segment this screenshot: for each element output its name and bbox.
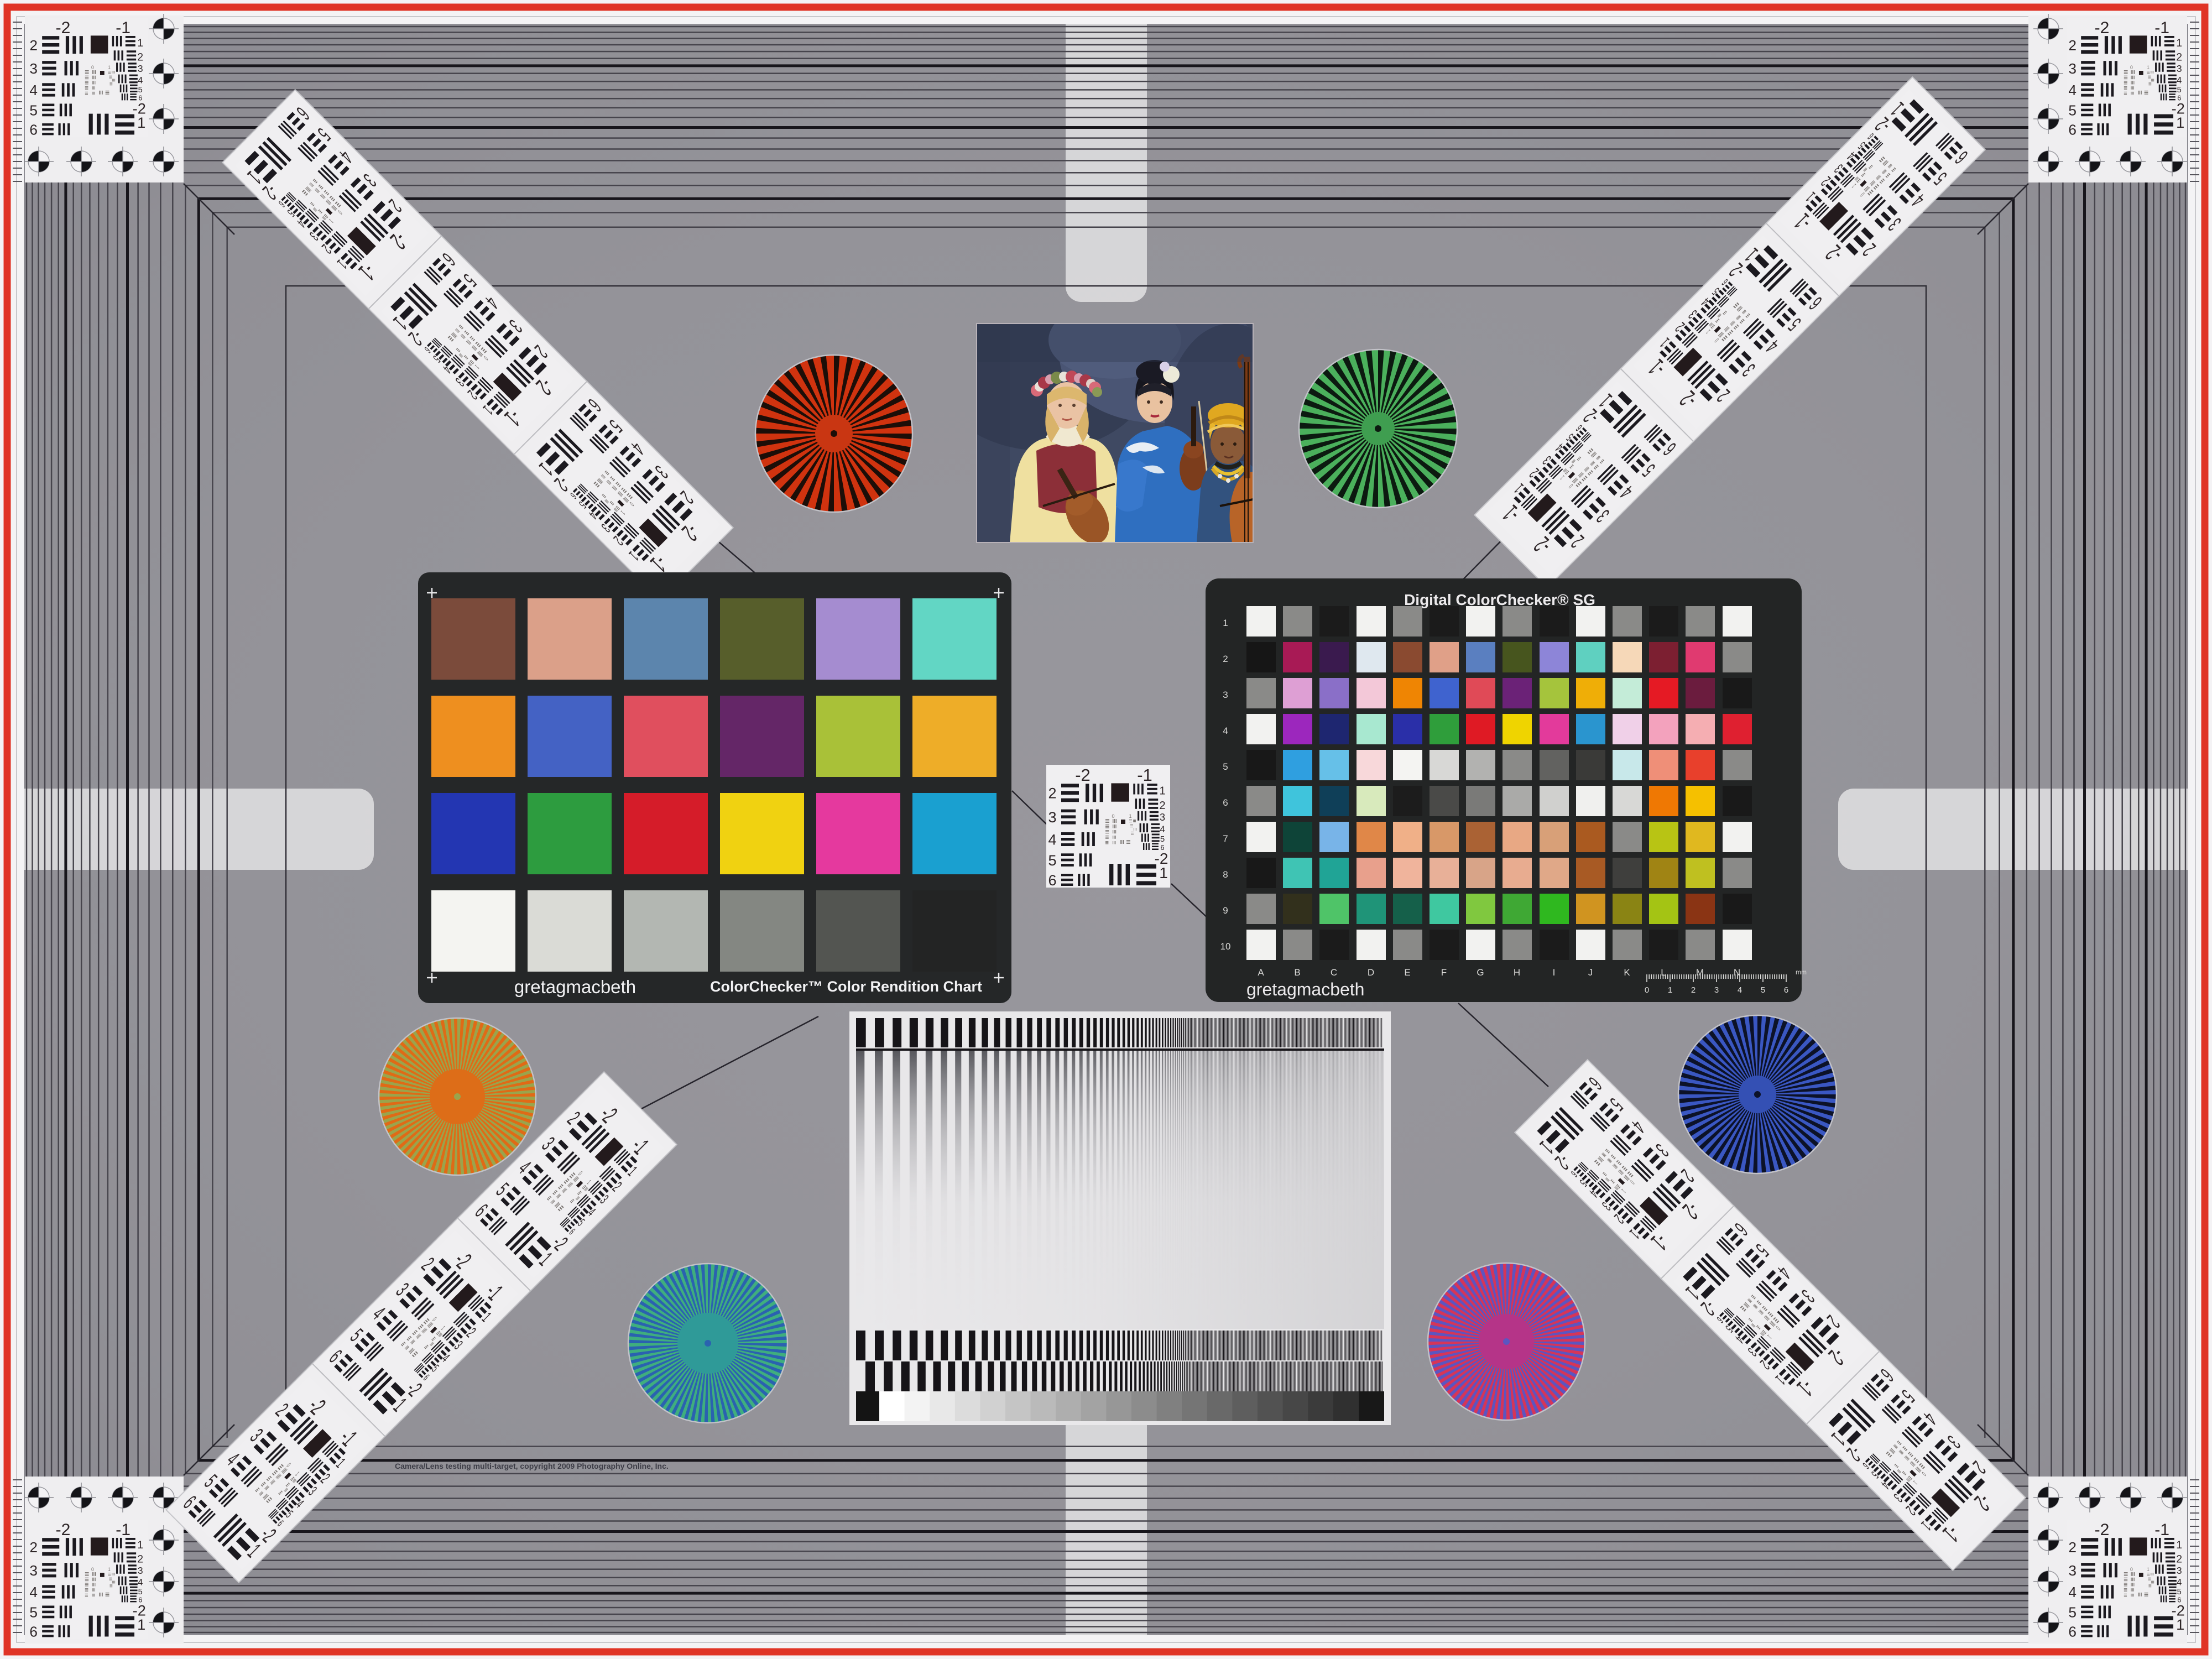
svg-text:B: B: [1294, 967, 1300, 978]
svg-text:5: 5: [1761, 985, 1765, 995]
svg-text:D: D: [1368, 967, 1374, 978]
svg-text:0: 0: [1645, 985, 1649, 995]
svg-text:2: 2: [1223, 654, 1228, 664]
svg-text:10: 10: [1220, 941, 1231, 952]
svg-text:I: I: [1553, 967, 1556, 978]
svg-text:4: 4: [1738, 985, 1742, 995]
svg-text:C: C: [1331, 967, 1337, 978]
svg-text:K: K: [1624, 967, 1630, 978]
svg-text:9: 9: [1223, 905, 1228, 916]
svg-text:5: 5: [1223, 761, 1228, 772]
svg-text:A: A: [1258, 967, 1264, 978]
svg-text:3: 3: [1223, 690, 1228, 700]
svg-text:J: J: [1588, 967, 1593, 978]
svg-text:1: 1: [1668, 985, 1672, 995]
svg-text:8: 8: [1223, 869, 1228, 880]
svg-text:4: 4: [1223, 726, 1228, 736]
svg-text:3: 3: [1714, 985, 1719, 995]
svg-text:H: H: [1514, 967, 1520, 978]
svg-text:2: 2: [1691, 985, 1695, 995]
svg-text:E: E: [1404, 967, 1410, 978]
svg-text:7: 7: [1223, 833, 1228, 844]
svg-text:gretagmacbeth: gretagmacbeth: [1246, 979, 1364, 999]
svg-text:6: 6: [1784, 985, 1788, 995]
svg-text:G: G: [1477, 967, 1484, 978]
svg-text:6: 6: [1223, 797, 1228, 808]
svg-text:1: 1: [1223, 618, 1228, 628]
svg-text:Camera/Lens testing multi-targ: Camera/Lens testing multi-target, copyri…: [395, 1462, 669, 1470]
svg-text:F: F: [1441, 967, 1447, 978]
svg-text:mm: mm: [1796, 968, 1807, 976]
svg-text:gretagmacbeth: gretagmacbeth: [514, 977, 636, 997]
svg-text:ColorChecker™ Color Rendition: ColorChecker™ Color Rendition Chart: [710, 978, 982, 995]
svg-text:Digital ColorChecker® SG: Digital ColorChecker® SG: [1404, 591, 1595, 608]
